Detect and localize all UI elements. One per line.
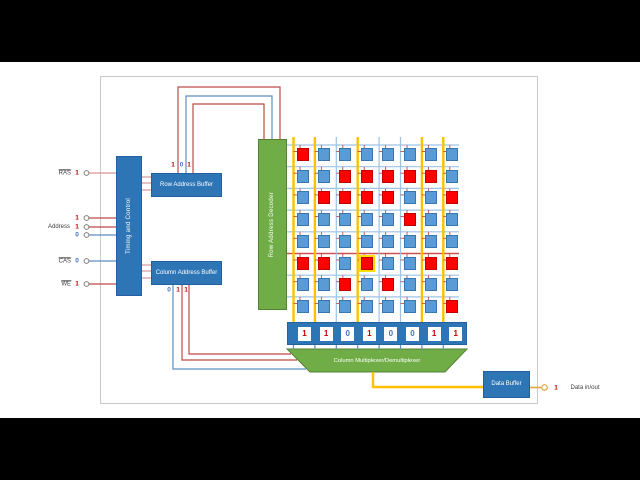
memory-cell — [404, 300, 416, 313]
memory-cell — [318, 191, 330, 204]
memory-cell — [404, 213, 416, 226]
row-bus-bit-2: 1 — [187, 162, 191, 169]
memory-cell — [404, 170, 416, 183]
memory-cell — [425, 257, 437, 270]
column-address-buffer-label: Column Address Buffer — [156, 270, 218, 277]
memory-cell — [361, 148, 373, 161]
ras-label: RAS — [59, 169, 71, 176]
data-inout-label: Data in/out — [570, 385, 599, 391]
memory-cell — [339, 213, 351, 226]
memory-cell — [425, 278, 437, 291]
memory-cell — [339, 148, 351, 161]
data-buffer-label: Data Buffer — [491, 381, 521, 388]
row-bus-red-inner — [193, 104, 264, 173]
register-bit: 0 — [406, 327, 419, 341]
memory-cell — [446, 170, 458, 183]
memory-cell-selected — [361, 257, 373, 270]
memory-cell — [339, 278, 351, 291]
memory-cell — [318, 278, 330, 291]
memory-cell — [382, 170, 394, 183]
row-address-decoder-block: Row Address Decoder — [258, 139, 287, 310]
memory-cell — [446, 191, 458, 204]
memory-cell — [339, 300, 351, 313]
cas-label: CAS — [59, 257, 71, 264]
ras-value: 1 — [75, 170, 79, 177]
register-bit: 0 — [384, 327, 397, 341]
address-terminal-0 — [84, 216, 89, 221]
address-terminal-2 — [84, 233, 89, 238]
register-bit: 1 — [298, 327, 311, 341]
row-address-buffer-block: Row Address Buffer — [151, 173, 222, 197]
address-terminal-1 — [84, 225, 89, 230]
memory-cell — [382, 191, 394, 204]
memory-cell — [425, 148, 437, 161]
sense-register-bar: 11010011 — [287, 322, 467, 345]
address-bit-2: 0 — [75, 232, 79, 239]
memory-cell — [382, 148, 394, 161]
memory-cell — [446, 278, 458, 291]
dram-diagram-stage: Timing and Control Row Address Buffer Co… — [0, 0, 640, 480]
register-bit: 1 — [428, 327, 441, 341]
memory-cell — [425, 300, 437, 313]
col-bus-bit-2: 1 — [184, 287, 188, 294]
register-bit: 1 — [449, 327, 462, 341]
memory-cell — [404, 235, 416, 248]
cas-value: 0 — [75, 258, 79, 265]
address-bit-0: 1 — [75, 215, 79, 222]
memory-cell — [446, 148, 458, 161]
data-buffer-block: Data Buffer — [483, 371, 530, 398]
memory-cell — [446, 300, 458, 313]
memory-cell — [297, 148, 309, 161]
memory-cell — [382, 278, 394, 291]
memory-cell — [425, 235, 437, 248]
memory-cell — [318, 148, 330, 161]
memory-cell — [318, 170, 330, 183]
memory-cell — [297, 191, 309, 204]
memory-cell — [382, 257, 394, 270]
memory-cell — [339, 257, 351, 270]
cas-terminal — [84, 259, 89, 264]
timing-and-control-block: Timing and Control — [116, 156, 142, 296]
memory-cell — [382, 235, 394, 248]
memory-cell — [404, 148, 416, 161]
we-label: WE — [61, 280, 71, 287]
memory-cell — [318, 300, 330, 313]
data-out-value: 1 — [554, 384, 558, 391]
register-bit: 1 — [363, 327, 376, 341]
memory-cell — [361, 278, 373, 291]
memory-cell — [297, 213, 309, 226]
we-value: 1 — [75, 281, 79, 288]
col-bus-bit-1: 1 — [176, 287, 180, 294]
row-address-buffer-label: Row Address Buffer — [160, 182, 213, 189]
memory-cell — [297, 235, 309, 248]
memory-cell — [318, 235, 330, 248]
memory-cell — [297, 278, 309, 291]
address-label: Address — [48, 224, 70, 230]
memory-cell — [361, 300, 373, 313]
memory-cell — [446, 235, 458, 248]
memory-cell — [339, 191, 351, 204]
register-bit: 1 — [320, 327, 333, 341]
memory-cell — [446, 213, 458, 226]
memory-cell — [339, 170, 351, 183]
memory-cell — [339, 235, 351, 248]
memory-cell — [361, 213, 373, 226]
row-address-decoder-label: Row Address Decoder — [269, 192, 276, 257]
memory-cell — [297, 170, 309, 183]
memory-cell — [404, 191, 416, 204]
data-inout-terminal — [542, 385, 548, 391]
we-terminal — [84, 282, 89, 287]
memory-cell — [404, 257, 416, 270]
column-multiplexer-label: Column Multiplexer/Demultiplexer — [334, 358, 421, 364]
register-bit: 0 — [341, 327, 354, 341]
col-bus-bit-0: 0 — [167, 287, 171, 294]
memory-cell — [382, 300, 394, 313]
column-address-buffer-block: Column Address Buffer — [151, 261, 222, 285]
memory-cell — [297, 300, 309, 313]
memory-cell — [425, 170, 437, 183]
memory-cell — [318, 257, 330, 270]
row-bus-bit-0: 1 — [171, 162, 175, 169]
memory-cell — [361, 191, 373, 204]
memory-cell — [297, 257, 309, 270]
memory-cell — [382, 213, 394, 226]
data-io-path — [373, 372, 483, 387]
ras-terminal — [84, 171, 89, 176]
memory-cell — [425, 191, 437, 204]
memory-cell — [404, 278, 416, 291]
row-bus-bit-1: 0 — [180, 162, 184, 169]
memory-cell — [446, 257, 458, 270]
memory-cell — [318, 213, 330, 226]
memory-cell — [361, 170, 373, 183]
memory-cell — [425, 213, 437, 226]
timing-and-control-label: Timing and Control — [126, 198, 133, 254]
memory-cell — [361, 235, 373, 248]
address-bit-1: 1 — [75, 224, 79, 231]
